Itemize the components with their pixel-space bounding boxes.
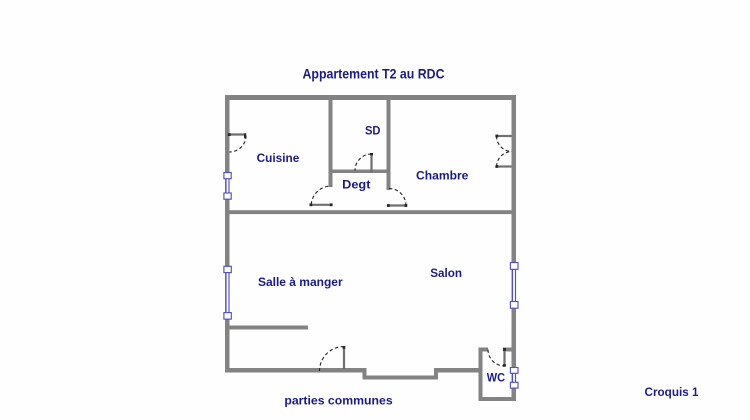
svg-text:SD: SD <box>365 124 381 138</box>
svg-text:Salle à manger: Salle à manger <box>258 275 343 289</box>
svg-text:Cuisine: Cuisine <box>257 151 300 165</box>
svg-text:Appartement T2 au RDC: Appartement T2 au RDC <box>303 66 445 82</box>
svg-text:Salon: Salon <box>430 266 462 280</box>
svg-text:Degt: Degt <box>342 177 370 191</box>
svg-text:Croquis 1: Croquis 1 <box>645 385 699 399</box>
svg-text:parties communes: parties communes <box>284 394 393 408</box>
svg-text:Chambre: Chambre <box>416 169 469 183</box>
svg-text:WC: WC <box>487 371 506 385</box>
